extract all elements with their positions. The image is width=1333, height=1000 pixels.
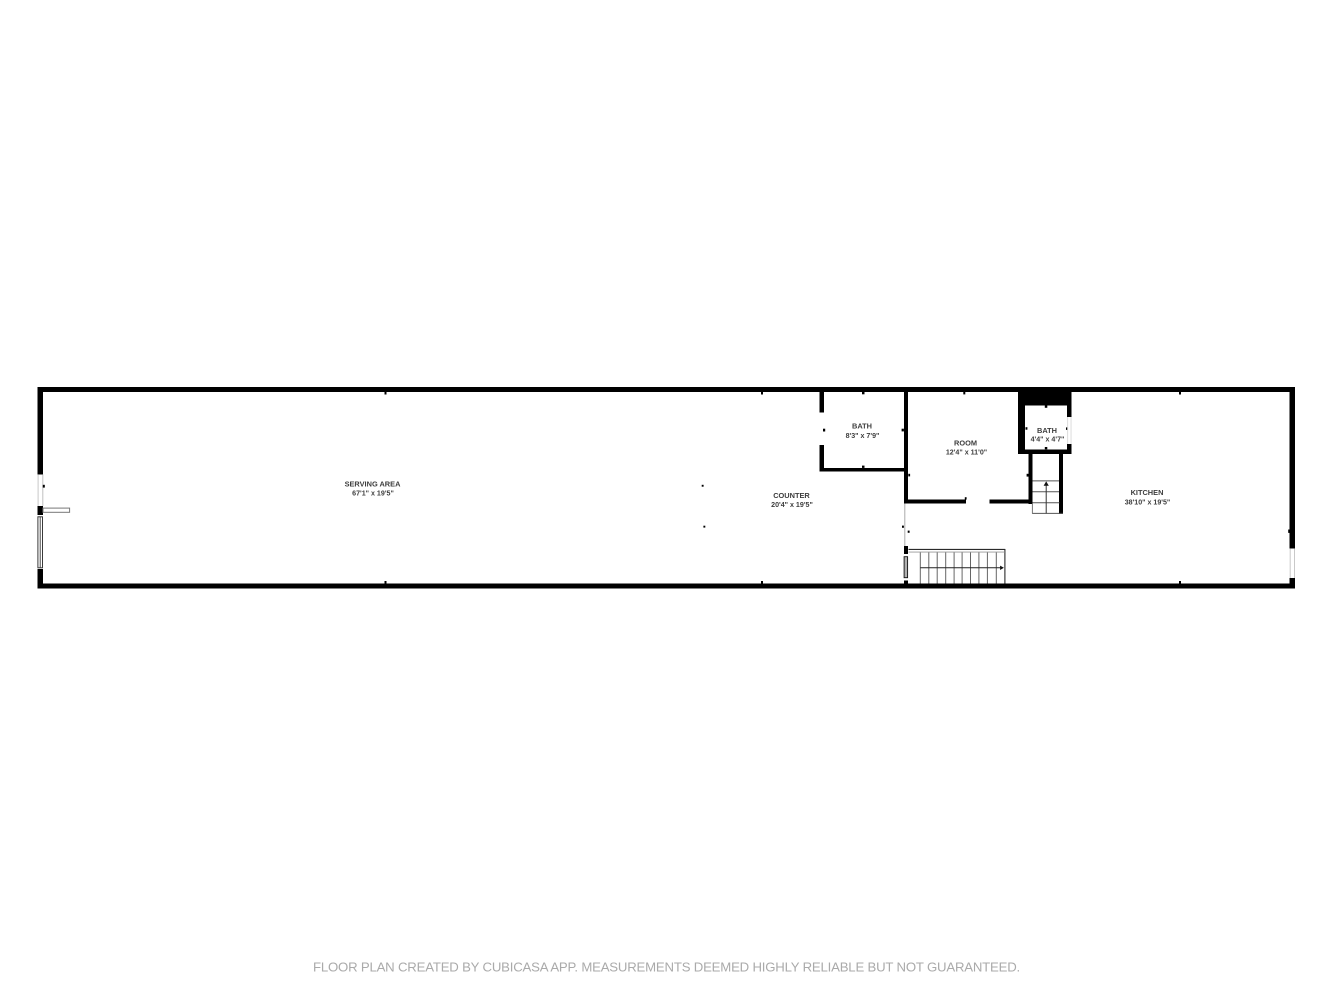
svg-text:12'4" x 11'0": 12'4" x 11'0" — [946, 448, 987, 456]
svg-text:ROOM: ROOM — [954, 439, 977, 448]
svg-text:BATH: BATH — [1037, 426, 1057, 435]
svg-text:4'4" x 4'7": 4'4" x 4'7" — [1031, 435, 1065, 443]
svg-text:FLOOR PLAN CREATED BY CUBICASA: FLOOR PLAN CREATED BY CUBICASA APP. MEAS… — [313, 960, 1020, 975]
svg-text:8'3" x 7'9": 8'3" x 7'9" — [846, 432, 880, 440]
svg-text:20'4" x 19'5": 20'4" x 19'5" — [771, 501, 813, 509]
svg-text:KITCHEN: KITCHEN — [1131, 488, 1164, 497]
svg-text:38'10" x 19'5": 38'10" x 19'5" — [1125, 499, 1171, 507]
svg-text:SERVING AREA: SERVING AREA — [345, 480, 402, 489]
svg-text:67'1" x 19'5": 67'1" x 19'5" — [352, 490, 394, 498]
svg-text:COUNTER: COUNTER — [773, 491, 810, 500]
svg-text:BATH: BATH — [852, 421, 872, 430]
